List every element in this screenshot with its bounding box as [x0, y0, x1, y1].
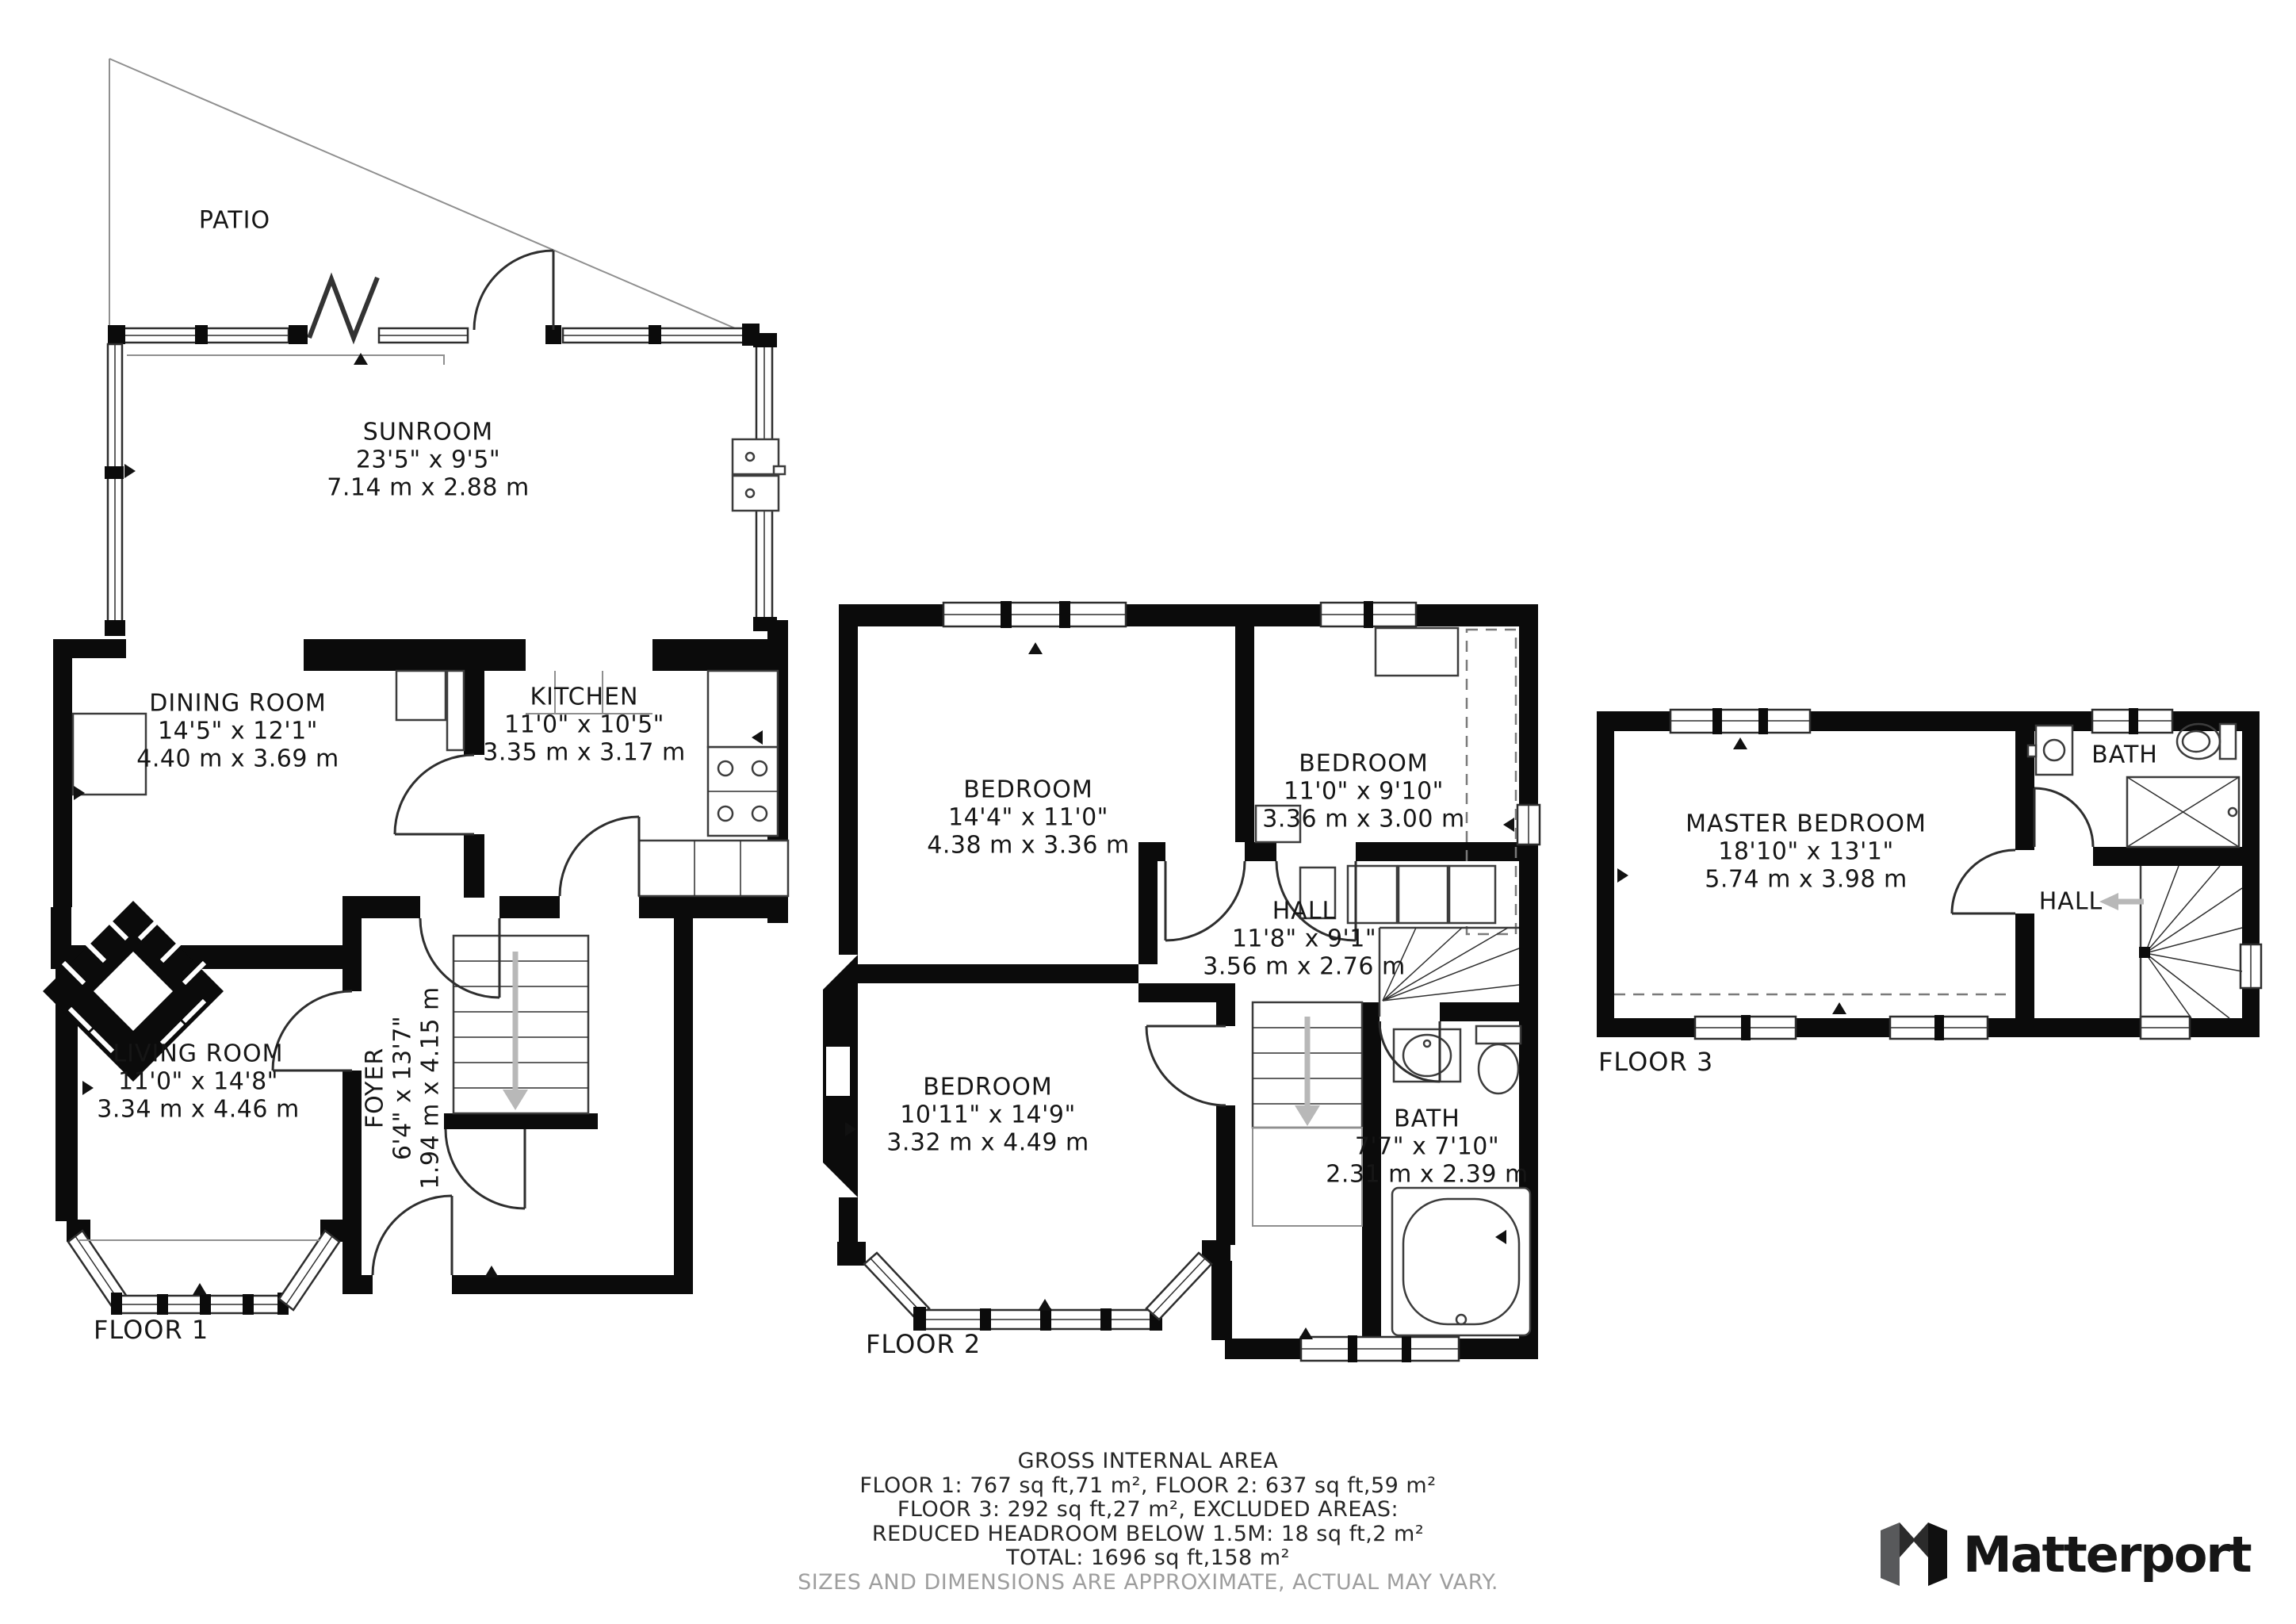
room-dims-imperial: 18'10" x 13'1" [1686, 838, 1927, 866]
room-dims-metric: 3.34 m x 4.46 m [97, 1096, 299, 1124]
room-label-dining-room: DINING ROOM14'5" x 12'1"4.40 m x 3.69 m [136, 690, 339, 773]
room-dims-imperial: 23'5" x 9'5" [327, 446, 529, 474]
room-dims-imperial: 10'11" x 14'9" [886, 1101, 1089, 1129]
floorplan-page: PATIOSUNROOM23'5" x 9'5"7.14 m x 2.88 mD… [0, 0, 2296, 1624]
floor2-plan [823, 601, 1540, 1362]
room-name: MASTER BEDROOM [1686, 810, 1927, 838]
room-label-sunroom: SUNROOM23'5" x 9'5"7.14 m x 2.88 m [327, 419, 529, 502]
room-label-hall: HALL11'8" x 9'1"3.56 m x 2.76 m [1203, 898, 1405, 981]
room-dims-metric: 3.36 m x 3.00 m [1262, 806, 1464, 833]
toilet-icon [1476, 1026, 1521, 1044]
room-label-patio: PATIO [199, 207, 270, 235]
room-dims-metric: 4.40 m x 3.69 m [136, 745, 339, 773]
room-name: BATH [1326, 1105, 1528, 1133]
room-label-bath: BATH [2091, 741, 2158, 769]
room-dims-imperial: 11'0" x 9'10" [1262, 778, 1464, 806]
room-dims-imperial: 11'0" x 10'5" [483, 711, 685, 739]
room-dims-imperial: 11'0" x 14'8" [97, 1068, 299, 1096]
room-dims-metric: 3.56 m x 2.76 m [1203, 953, 1405, 981]
area-summary-line-1: FLOOR 1: 767 sq ft,71 m², FLOOR 2: 637 s… [0, 1474, 2296, 1499]
open-wall-zigzag-icon [309, 278, 377, 338]
room-dims-metric: 5.74 m x 3.98 m [1686, 866, 1927, 894]
floor-label-1: FLOOR 1 [94, 1315, 209, 1345]
room-label-bath: BATH7'7" x 7'10"2.31 m x 2.39 m [1326, 1105, 1528, 1189]
room-label-living-room: LIVING ROOM11'0" x 14'8"3.34 m x 4.46 m [97, 1040, 299, 1124]
room-label-bedroom: BEDROOM10'11" x 14'9"3.32 m x 4.49 m [886, 1074, 1089, 1157]
room-name: SUNROOM [327, 419, 529, 446]
room-name: HALL [1203, 898, 1405, 925]
toilet-icon [2220, 724, 2236, 759]
area-summary-line-2: FLOOR 3: 292 sq ft,27 m², EXCLUDED AREAS… [0, 1498, 2296, 1522]
floor-label-2: FLOOR 2 [866, 1329, 981, 1359]
floor1-stairs [453, 936, 588, 1113]
room-dims-imperial: 7'7" x 7'10" [1326, 1133, 1528, 1161]
room-dims-metric: 2.31 m x 2.39 m [1326, 1161, 1528, 1189]
room-name: FOYER [362, 986, 389, 1189]
room-dims-metric: 3.32 m x 4.49 m [886, 1129, 1089, 1157]
patio-outline [109, 59, 757, 338]
room-label-hall: HALL [2039, 888, 2103, 916]
bathtub-icon [1392, 1188, 1530, 1335]
room-name: PATIO [199, 207, 270, 235]
room-label-kitchen: KITCHEN11'0" x 10'5"3.35 m x 3.17 m [483, 684, 685, 767]
room-name: DINING ROOM [136, 690, 339, 718]
room-name: BATH [2091, 741, 2158, 769]
room-label-bedroom: BEDROOM11'0" x 9'10"3.36 m x 3.00 m [1262, 750, 1464, 833]
room-dims-imperial: 14'5" x 12'1" [136, 718, 339, 745]
sink-icon [2036, 726, 2072, 775]
room-label-master-bedroom: MASTER BEDROOM18'10" x 13'1"5.74 m x 3.9… [1686, 810, 1927, 894]
room-name: BEDROOM [886, 1074, 1089, 1101]
room-dims-metric: 7.14 m x 2.88 m [327, 474, 529, 502]
room-name: LIVING ROOM [97, 1040, 299, 1068]
floor3-stairs [2099, 866, 2242, 1018]
room-name: BEDROOM [927, 776, 1129, 804]
room-dims-metric: 4.38 m x 3.36 m [927, 832, 1129, 860]
room-name: BEDROOM [1262, 750, 1464, 778]
room-dims-metric: 3.35 m x 3.17 m [483, 739, 685, 767]
kitchen-sink-icon [733, 439, 779, 474]
matterport-logo-text: Matterport [1963, 1526, 2251, 1584]
matterport-logo: Matterport [1881, 1521, 2251, 1588]
area-summary-title: GROSS INTERNAL AREA [0, 1450, 2296, 1474]
room-dims-imperial: 14'4" x 11'0" [927, 804, 1129, 832]
room-label-foyer: FOYER6'4" x 13'7"1.94 m x 4.15 m [362, 986, 445, 1189]
room-name: HALL [2039, 888, 2103, 916]
floorplan-drawing [0, 0, 2296, 1624]
room-dims-imperial: 11'8" x 9'1" [1203, 925, 1405, 953]
room-label-bedroom: BEDROOM14'4" x 11'0"4.38 m x 3.36 m [927, 776, 1129, 860]
room-dims-metric: 1.94 m x 4.15 m [417, 986, 445, 1189]
room-dims-imperial: 6'4" x 13'7" [389, 986, 417, 1189]
floor-label-3: FLOOR 3 [1598, 1047, 1713, 1077]
matterport-logo-icon [1881, 1521, 1947, 1588]
room-name: KITCHEN [483, 684, 685, 711]
